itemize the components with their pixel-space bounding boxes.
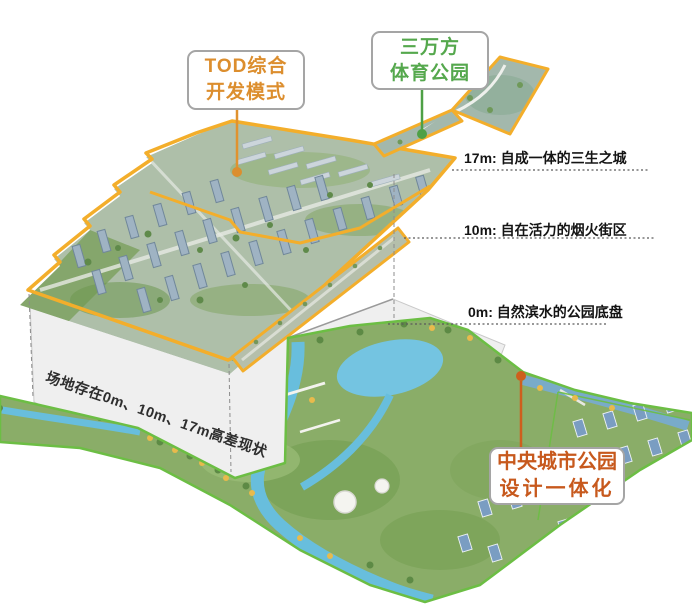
sports-leader-dot — [417, 129, 427, 139]
level-17-annotation: 17m: 自成一体的三生之城 — [464, 148, 627, 168]
tod-label-line2: 开发模式 — [206, 80, 286, 106]
tod-leader-dot — [232, 167, 242, 177]
sports-park-label: 三万方 体育公园 — [371, 31, 489, 90]
tod-label-line1: TOD综合 — [205, 54, 288, 80]
sports-park-label-line1: 三万方 — [400, 35, 460, 61]
central-park-label-line1: 中央城市公园 — [497, 449, 617, 476]
level-0-annotation: 0m: 自然滨水的公园底盘 — [468, 302, 623, 322]
central-park-label: 中央城市公园 设计一体化 — [489, 447, 625, 505]
urban-design-diagram: TOD综合 开发模式 三万方 体育公园 中央城市公园 设计一体化 17m: 自成… — [0, 0, 692, 607]
sports-park-label-line2: 体育公园 — [390, 61, 470, 87]
tod-label: TOD综合 开发模式 — [187, 50, 305, 110]
dome-building — [334, 491, 356, 513]
level-dotted-lines — [388, 170, 656, 324]
central-leader-dot — [516, 371, 526, 381]
central-park-label-line2: 设计一体化 — [500, 476, 615, 503]
level-10-annotation: 10m: 自在活力的烟火街区 — [464, 220, 627, 240]
